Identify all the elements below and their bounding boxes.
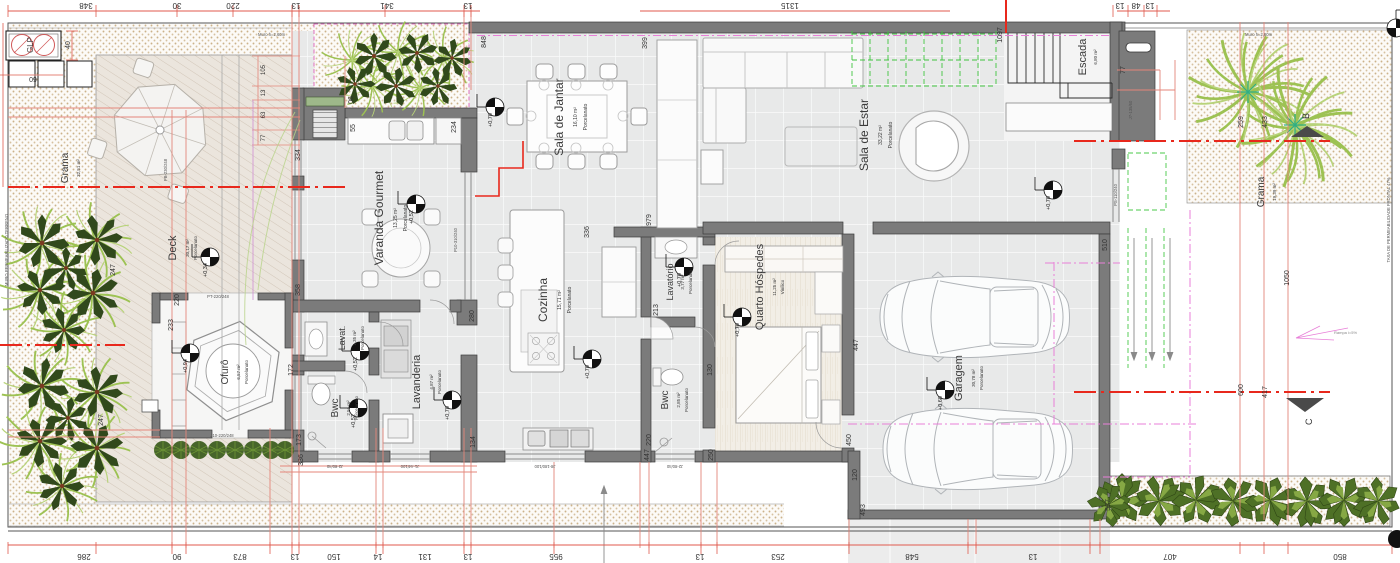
svg-text:PT-220/248: PT-220/248 — [207, 294, 229, 299]
svg-text:280: 280 — [469, 310, 476, 322]
svg-text:J2-80/40: J2-80/40 — [666, 464, 683, 469]
svg-text:Deck: Deck — [167, 235, 179, 261]
svg-text:130: 130 — [707, 364, 714, 376]
svg-text:16,10 m²: 16,10 m² — [573, 107, 579, 127]
svg-text:13: 13 — [463, 552, 472, 561]
svg-text:Grama: Grama — [1256, 176, 1267, 207]
svg-text:253: 253 — [771, 552, 785, 561]
svg-text:06: 06 — [348, 96, 355, 104]
svg-text:PS-110/240: PS-110/240 — [1113, 183, 1118, 205]
svg-text:873: 873 — [233, 552, 247, 561]
svg-text:220: 220 — [174, 294, 181, 306]
svg-text:510: 510 — [1102, 239, 1109, 251]
svg-text:848: 848 — [481, 36, 488, 48]
svg-text:TAXA DE PERMEABILIDADE FRONTAL: TAXA DE PERMEABILIDADE FRONTAL 47% — [1386, 177, 1391, 262]
svg-text:2,85 m²: 2,85 m² — [676, 392, 681, 408]
svg-text:63: 63 — [261, 111, 267, 118]
svg-text:13,25 m²: 13,25 m² — [393, 208, 399, 228]
svg-text:Porcelanato: Porcelanato — [888, 121, 894, 148]
svg-text:Porcelanato: Porcelanato — [684, 388, 689, 413]
svg-text:30,78 m²: 30,78 m² — [971, 369, 976, 387]
svg-text:548: 548 — [905, 552, 919, 561]
svg-text:15,71 m²: 15,71 m² — [557, 290, 563, 310]
svg-text:13: 13 — [1028, 552, 1037, 561]
svg-text:C: C — [1304, 418, 1314, 425]
svg-text:PB-230/248: PB-230/248 — [163, 158, 168, 181]
svg-text:399: 399 — [642, 37, 649, 49]
svg-text:Garagem: Garagem — [953, 355, 965, 401]
svg-text:+0,94: +0,94 — [183, 359, 189, 373]
svg-text:447: 447 — [853, 339, 860, 351]
svg-text:259: 259 — [1238, 116, 1245, 128]
svg-text:220: 220 — [646, 434, 653, 446]
svg-text:131: 131 — [418, 552, 432, 561]
svg-text:341: 341 — [380, 1, 394, 10]
svg-text:587: 587 — [1105, 499, 1112, 511]
svg-text:Grama: Grama — [60, 152, 71, 183]
svg-text:358: 358 — [295, 284, 302, 296]
svg-text:Muro h=2,60m: Muro h=2,60m — [258, 32, 286, 37]
svg-text:Lavanderia: Lavanderia — [411, 354, 423, 409]
svg-text:955: 955 — [549, 552, 563, 561]
svg-text:173: 173 — [296, 434, 303, 446]
svg-text:B: B — [1301, 113, 1311, 119]
svg-text:+0,70: +0,70 — [488, 113, 494, 127]
svg-text:19,39 m²: 19,39 m² — [1272, 183, 1277, 201]
svg-text:1097: 1097 — [997, 27, 1004, 43]
svg-text:Porcelanato: Porcelanato — [354, 396, 359, 421]
svg-text:450: 450 — [846, 434, 853, 446]
svg-text:+0,34: +0,34 — [203, 263, 209, 277]
svg-text:286: 286 — [77, 552, 91, 561]
svg-text:336: 336 — [584, 226, 591, 238]
svg-text:30,17 m²: 30,17 m² — [185, 239, 190, 257]
svg-text:Porcelanato: Porcelanato — [583, 103, 589, 130]
svg-text:Sala de Estar: Sala de Estar — [857, 99, 871, 171]
svg-text:220: 220 — [226, 1, 240, 10]
svg-text:247: 247 — [98, 414, 105, 426]
svg-text:234: 234 — [451, 121, 458, 133]
svg-text:Sala de Jantar: Sala de Jantar — [552, 78, 566, 155]
svg-text:Rampa i=5%: Rampa i=5% — [1334, 330, 1357, 335]
svg-text:Porcelanato: Porcelanato — [688, 270, 693, 295]
svg-text:336: 336 — [298, 454, 305, 466]
svg-text:13: 13 — [291, 1, 300, 10]
svg-text:6,80 m²: 6,80 m² — [1093, 49, 1098, 65]
svg-text:134: 134 — [470, 436, 477, 448]
svg-text:30: 30 — [172, 1, 181, 10]
svg-text:J2-80/40: J2-80/40 — [326, 464, 343, 469]
svg-text:+0,70: +0,70 — [1046, 196, 1052, 210]
svg-text:13: 13 — [261, 89, 267, 96]
svg-text:979: 979 — [646, 214, 653, 226]
svg-text:2,51 m²: 2,51 m² — [346, 400, 351, 416]
svg-text:55: 55 — [350, 124, 357, 132]
svg-text:172: 172 — [288, 364, 295, 376]
svg-text:33,22 m²: 33,22 m² — [878, 125, 884, 145]
svg-text:Varanda Gourmet: Varanda Gourmet — [372, 170, 386, 265]
svg-text:77: 77 — [261, 134, 267, 141]
svg-text:1050: 1050 — [1284, 270, 1291, 286]
svg-text:J7-135/60: J7-135/60 — [1128, 100, 1133, 119]
svg-text:Cozinha: Cozinha — [536, 278, 550, 322]
svg-text:90: 90 — [172, 552, 181, 561]
svg-text:493: 493 — [860, 504, 867, 516]
svg-text:105: 105 — [261, 64, 267, 75]
svg-text:850: 850 — [1333, 552, 1347, 561]
svg-text:13: 13 — [1115, 1, 1124, 10]
svg-text:Porcelanato: Porcelanato — [360, 326, 365, 351]
svg-text:J1-44/100: J1-44/100 — [400, 464, 419, 469]
svg-text:3,77 m²: 3,77 m² — [680, 274, 685, 290]
svg-text:+0,60: +0,60 — [938, 396, 944, 410]
svg-text:+0,70: +0,70 — [445, 406, 451, 420]
svg-text:233: 233 — [168, 319, 175, 331]
svg-text:1,35 m²: 1,35 m² — [352, 330, 357, 346]
svg-text:Lavatório: Lavatório — [665, 263, 675, 300]
svg-text:J8-180/100: J8-180/100 — [534, 464, 556, 469]
svg-text:213: 213 — [653, 304, 660, 316]
svg-text:334: 334 — [295, 149, 302, 161]
svg-text:Porcelanato: Porcelanato — [567, 286, 573, 313]
svg-text:MURO PERMEABILIZADO TERRENO: MURO PERMEABILIZADO TERRENO — [4, 213, 9, 286]
svg-text:Bwc: Bwc — [660, 391, 671, 410]
svg-text:Porcelanato: Porcelanato — [403, 204, 409, 231]
svg-text:417: 417 — [1262, 386, 1269, 398]
svg-text:Escada: Escada — [1077, 38, 1089, 76]
svg-text:6,57 m²: 6,57 m² — [236, 364, 241, 380]
svg-text:250: 250 — [708, 449, 715, 461]
svg-text:13: 13 — [290, 552, 299, 561]
svg-text:+0,52: +0,52 — [353, 357, 359, 371]
svg-text:13: 13 — [1145, 1, 1154, 10]
svg-text:433: 433 — [1262, 116, 1269, 128]
svg-text:+0,70: +0,70 — [735, 323, 741, 337]
svg-text:13: 13 — [463, 1, 472, 10]
svg-text:Bwc: Bwc — [330, 399, 341, 418]
svg-text:Lavat.: Lavat. — [337, 326, 347, 351]
svg-text:1315: 1315 — [781, 1, 799, 10]
svg-text:447: 447 — [644, 449, 651, 461]
svg-text:60: 60 — [29, 75, 37, 82]
svg-text:4,87 m²: 4,87 m² — [429, 374, 434, 390]
svg-text:11,25 m²: 11,25 m² — [772, 278, 777, 296]
svg-text:13: 13 — [695, 552, 704, 561]
svg-text:48: 48 — [1131, 1, 1140, 10]
svg-text:14: 14 — [373, 552, 382, 561]
svg-text:GLP: GLP — [26, 37, 35, 53]
svg-text:Muro h=2,60m: Muro h=2,60m — [1245, 32, 1273, 37]
svg-text:247: 247 — [110, 264, 117, 276]
svg-text:+0,70: +0,70 — [585, 365, 591, 379]
svg-text:600: 600 — [1238, 384, 1245, 396]
svg-text:Ofurô: Ofurô — [220, 359, 231, 384]
svg-text:Quarto Hóspedes: Quarto Hóspedes — [754, 243, 766, 330]
svg-text:Porcelanato: Porcelanato — [979, 366, 984, 391]
svg-text:+0,52: +0,52 — [409, 210, 415, 224]
svg-text:150: 150 — [327, 552, 341, 561]
svg-text:120: 120 — [852, 469, 859, 481]
svg-text:407: 407 — [1163, 552, 1177, 561]
svg-text:77: 77 — [1120, 66, 1127, 74]
svg-text:J10-220/248: J10-220/248 — [210, 433, 234, 438]
svg-text:P10-310/240: P10-310/240 — [453, 227, 458, 252]
svg-text:40: 40 — [65, 41, 72, 49]
svg-text:32,51 m²: 32,51 m² — [76, 159, 81, 177]
svg-text:Porcelanato: Porcelanato — [193, 236, 198, 261]
svg-text:Porcelanato: Porcelanato — [437, 370, 442, 395]
svg-text:Porcelanato: Porcelanato — [244, 360, 249, 385]
svg-text:348: 348 — [79, 1, 93, 10]
svg-text:Vinílico: Vinílico — [780, 279, 785, 294]
